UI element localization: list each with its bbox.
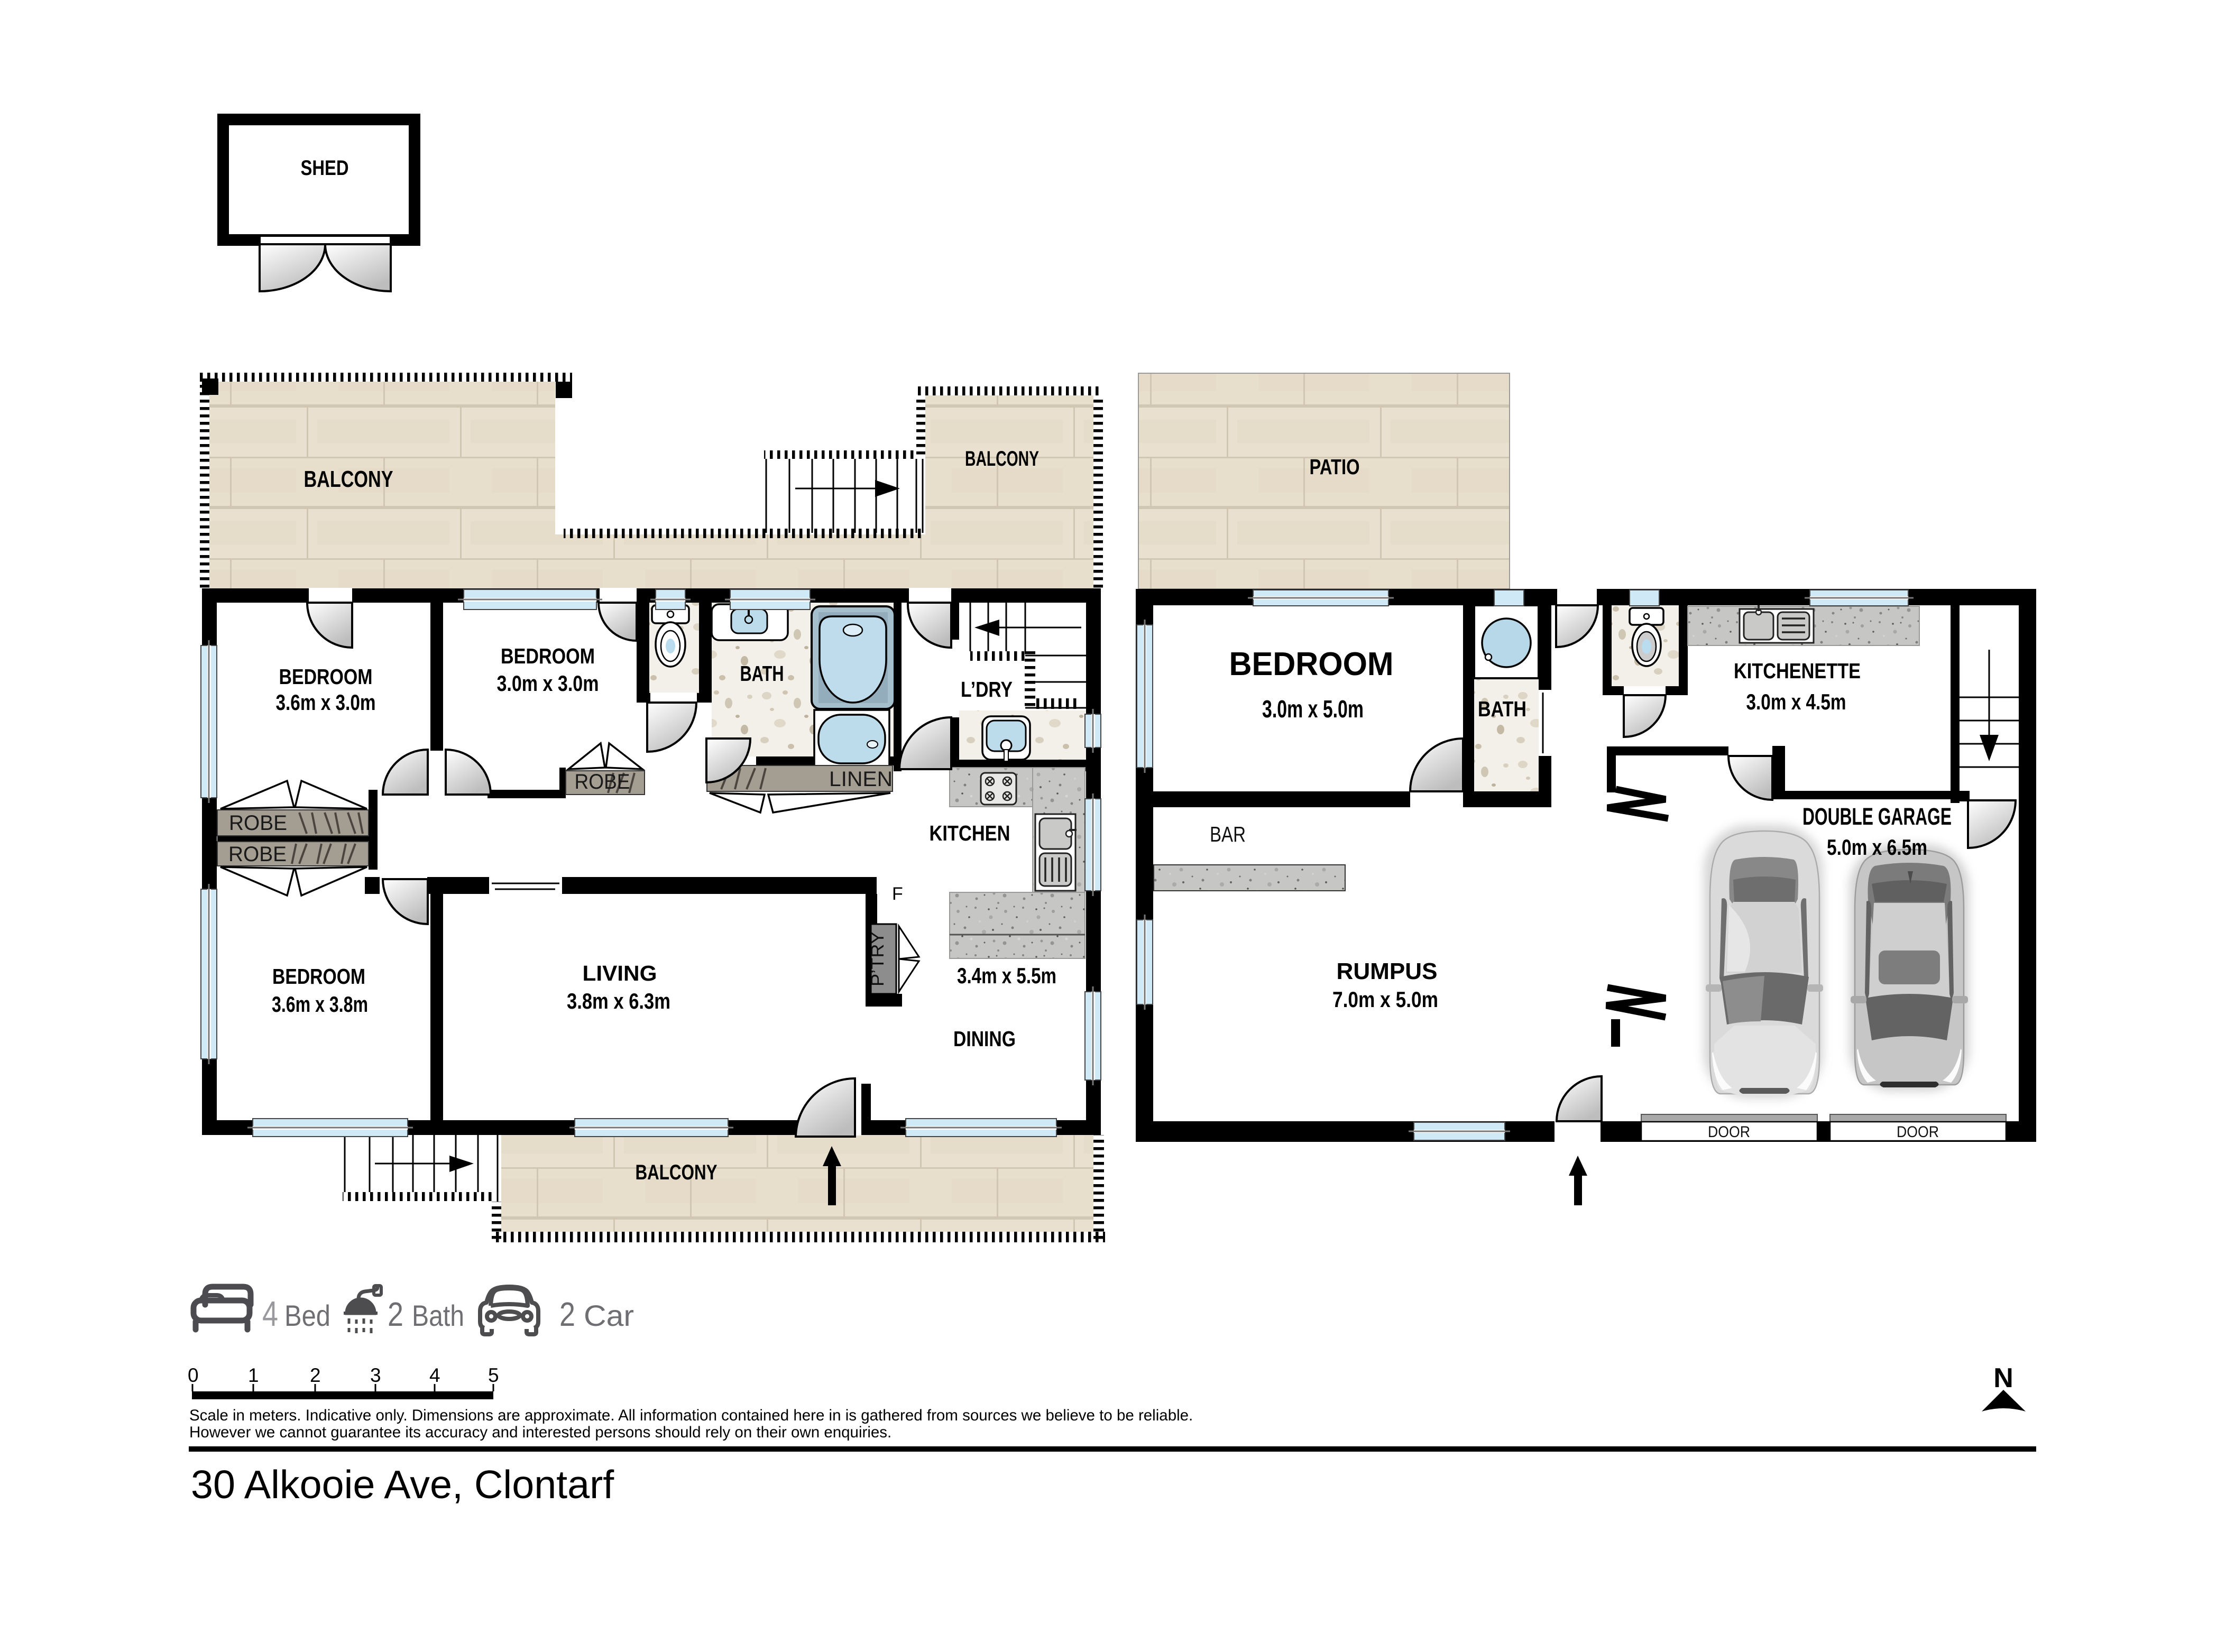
- svg-text:N: N: [1993, 1363, 2013, 1393]
- svg-text:DINING: DINING: [953, 1027, 1016, 1051]
- svg-text:BAR: BAR: [1210, 822, 1246, 846]
- svg-text:3.6m x 3.0m: 3.6m x 3.0m: [276, 690, 376, 715]
- svg-text:ROBE: ROBE: [228, 843, 287, 866]
- svg-text:3: 3: [370, 1364, 381, 1386]
- svg-text:3.8m x 6.3m: 3.8m x 6.3m: [567, 989, 670, 1013]
- svg-text:30 Alkooie Ave, Clontarf: 30 Alkooie Ave, Clontarf: [191, 1462, 614, 1507]
- svg-text:1: 1: [248, 1364, 259, 1386]
- svg-text:DOOR: DOOR: [1897, 1123, 1939, 1141]
- svg-text:Car: Car: [584, 1299, 634, 1332]
- svg-text:Bed: Bed: [284, 1299, 330, 1332]
- svg-text:L’DRY: L’DRY: [961, 677, 1013, 702]
- svg-text:BEDROOM: BEDROOM: [1229, 646, 1394, 682]
- svg-text:ROBE: ROBE: [229, 811, 287, 835]
- svg-text:4: 4: [262, 1294, 278, 1334]
- svg-text:Scale in meters. Indicative on: Scale in meters. Indicative only. Dimens…: [189, 1407, 1193, 1424]
- svg-text:KITCHEN: KITCHEN: [930, 821, 1010, 845]
- svg-text:7.0m x 5.0m: 7.0m x 5.0m: [1332, 987, 1438, 1012]
- svg-text:F: F: [892, 884, 903, 904]
- svg-text:PATIO: PATIO: [1310, 455, 1360, 479]
- svg-text:BALCONY: BALCONY: [304, 466, 393, 492]
- svg-text:BALCONY: BALCONY: [965, 447, 1039, 470]
- svg-text:2: 2: [310, 1364, 321, 1386]
- svg-text:RUMPUS: RUMPUS: [1337, 958, 1438, 984]
- svg-text:SHED: SHED: [301, 156, 349, 180]
- svg-text:ROBE: ROBE: [575, 770, 630, 793]
- svg-text:3.0m x 4.5m: 3.0m x 4.5m: [1746, 689, 1846, 714]
- svg-text:P’TRY: P’TRY: [868, 931, 888, 986]
- svg-text:BATH: BATH: [740, 661, 784, 686]
- svg-text:5: 5: [488, 1364, 499, 1386]
- svg-text:LIVING: LIVING: [583, 961, 657, 985]
- svg-text:BATH: BATH: [1478, 697, 1526, 721]
- svg-text:LINEN: LINEN: [829, 768, 893, 791]
- svg-text:BEDROOM: BEDROOM: [272, 964, 365, 989]
- svg-text:2: 2: [388, 1295, 403, 1333]
- svg-text:0: 0: [188, 1364, 199, 1386]
- svg-text:Bath: Bath: [412, 1299, 464, 1332]
- svg-text:4: 4: [429, 1364, 440, 1386]
- svg-text:BALCONY: BALCONY: [636, 1161, 718, 1184]
- svg-text:3.0m x 5.0m: 3.0m x 5.0m: [1262, 695, 1364, 723]
- svg-text:KITCHENETTE: KITCHENETTE: [1734, 659, 1861, 683]
- svg-text:3.4m x 5.5m: 3.4m x 5.5m: [957, 963, 1056, 988]
- svg-text:2: 2: [559, 1295, 575, 1333]
- svg-text:However we cannot guarantee it: However we cannot guarantee its accuracy…: [189, 1424, 891, 1441]
- svg-text:5.0m x 6.5m: 5.0m x 6.5m: [1827, 835, 1927, 860]
- svg-text:3.6m x 3.8m: 3.6m x 3.8m: [272, 992, 368, 1017]
- svg-text:BEDROOM: BEDROOM: [279, 665, 373, 689]
- svg-text:BEDROOM: BEDROOM: [501, 644, 595, 668]
- svg-text:3.0m x 3.0m: 3.0m x 3.0m: [497, 671, 599, 696]
- svg-text:DOUBLE GARAGE: DOUBLE GARAGE: [1802, 803, 1952, 830]
- svg-text:DOOR: DOOR: [1708, 1123, 1750, 1141]
